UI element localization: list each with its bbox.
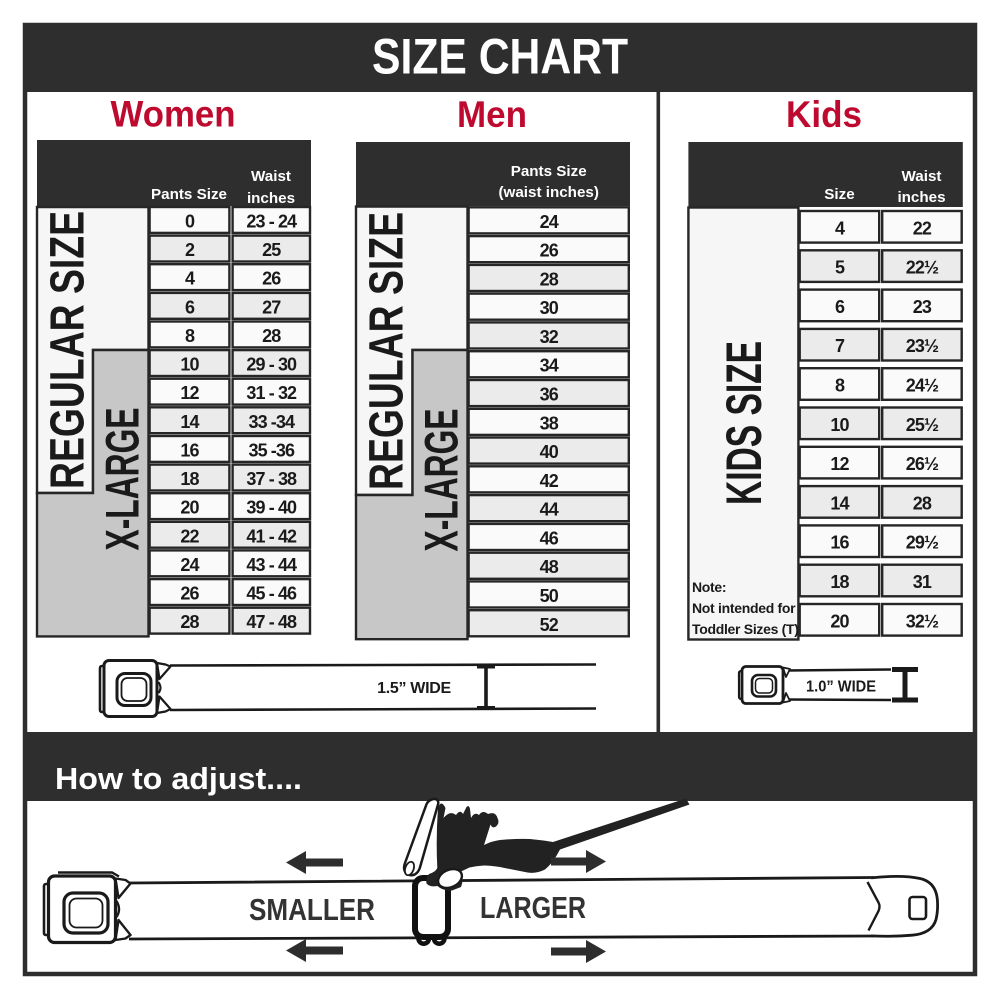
svg-text:20: 20	[180, 498, 199, 518]
svg-text:22: 22	[180, 526, 199, 546]
svg-text:14: 14	[830, 493, 849, 513]
svg-text:SIZE CHART: SIZE CHART	[372, 29, 628, 85]
svg-text:12: 12	[830, 454, 849, 474]
svg-text:38: 38	[540, 413, 559, 433]
svg-text:KIDS SIZE: KIDS SIZE	[716, 341, 772, 505]
svg-text:27: 27	[262, 297, 281, 317]
svg-text:45 - 46: 45 - 46	[246, 584, 297, 604]
svg-text:28: 28	[540, 269, 559, 289]
svg-text:41 - 42: 41 - 42	[246, 526, 297, 546]
svg-text:8: 8	[185, 326, 195, 346]
svg-text:inches: inches	[247, 190, 295, 207]
svg-text:43 - 44: 43 - 44	[246, 555, 297, 575]
svg-text:30: 30	[540, 298, 559, 318]
svg-text:37 - 38: 37 - 38	[246, 469, 297, 489]
svg-text:Note:: Note:	[692, 579, 726, 595]
svg-text:16: 16	[830, 533, 849, 553]
svg-text:How to adjust....: How to adjust....	[55, 761, 302, 796]
svg-text:31: 31	[913, 572, 932, 592]
svg-text:26½: 26½	[906, 454, 939, 474]
svg-text:18: 18	[180, 469, 199, 489]
svg-text:LARGER: LARGER	[480, 890, 586, 925]
svg-text:31 - 32: 31 - 32	[246, 383, 297, 403]
svg-text:24: 24	[180, 555, 199, 575]
svg-text:32: 32	[540, 327, 559, 347]
svg-text:8: 8	[835, 376, 845, 396]
svg-text:40: 40	[540, 442, 559, 462]
svg-text:42: 42	[540, 471, 559, 491]
svg-text:X-LARGE: X-LARGE	[415, 409, 468, 552]
svg-text:Waist: Waist	[251, 168, 291, 185]
svg-text:44: 44	[540, 500, 559, 520]
svg-text:28: 28	[913, 493, 932, 513]
svg-text:23½: 23½	[906, 336, 939, 356]
svg-text:18: 18	[830, 572, 849, 592]
svg-text:10: 10	[830, 415, 849, 435]
svg-text:23: 23	[913, 297, 932, 317]
svg-text:Waist: Waist	[902, 168, 942, 185]
svg-text:Toddler Sizes (T): Toddler Sizes (T)	[692, 621, 799, 637]
svg-text:22: 22	[913, 218, 932, 238]
svg-text:20: 20	[830, 611, 849, 631]
svg-text:33 -34: 33 -34	[248, 412, 295, 432]
svg-text:28: 28	[180, 612, 199, 632]
svg-text:Kids: Kids	[786, 93, 862, 135]
svg-text:5: 5	[835, 258, 845, 278]
svg-text:24: 24	[540, 212, 559, 232]
svg-text:26: 26	[540, 241, 559, 261]
svg-text:48: 48	[540, 557, 559, 577]
svg-text:25½: 25½	[906, 415, 939, 435]
svg-text:52: 52	[540, 615, 559, 635]
svg-text:29 - 30: 29 - 30	[246, 355, 297, 375]
svg-text:16: 16	[180, 440, 199, 460]
svg-text:46: 46	[540, 528, 559, 548]
svg-text:Not intended for: Not intended for	[692, 600, 796, 616]
svg-text:29½: 29½	[906, 533, 939, 553]
svg-text:28: 28	[262, 326, 281, 346]
svg-text:6: 6	[185, 297, 195, 317]
svg-text:25: 25	[262, 240, 281, 260]
svg-text:Pants Size: Pants Size	[151, 186, 227, 203]
svg-text:50: 50	[540, 586, 559, 606]
svg-text:26: 26	[262, 269, 281, 289]
svg-text:inches: inches	[897, 189, 945, 206]
svg-text:35 -36: 35 -36	[248, 440, 295, 460]
svg-text:4: 4	[185, 269, 195, 289]
svg-text:Women: Women	[111, 93, 236, 135]
svg-text:4: 4	[835, 218, 845, 238]
svg-text:Men: Men	[457, 93, 527, 135]
svg-text:Pants Size: Pants Size	[511, 163, 587, 180]
svg-text:24½: 24½	[906, 376, 939, 396]
svg-text:1.5” WIDE: 1.5” WIDE	[377, 680, 451, 697]
svg-text:36: 36	[540, 385, 559, 405]
svg-text:SMALLER: SMALLER	[249, 892, 375, 927]
svg-text:22½: 22½	[906, 258, 939, 278]
svg-text:(waist inches): (waist inches)	[498, 184, 598, 201]
svg-text:REGULAR SIZE: REGULAR SIZE	[42, 211, 95, 489]
svg-text:12: 12	[180, 383, 199, 403]
svg-text:10: 10	[180, 355, 199, 375]
svg-text:39 - 40: 39 - 40	[246, 498, 297, 518]
svg-text:23 - 24: 23 - 24	[246, 211, 297, 231]
svg-text:2: 2	[185, 240, 195, 260]
svg-text:14: 14	[180, 412, 199, 432]
svg-text:32½: 32½	[906, 611, 939, 631]
svg-text:1.0” WIDE: 1.0” WIDE	[806, 679, 876, 696]
svg-text:26: 26	[180, 584, 199, 604]
svg-text:REGULAR SIZE: REGULAR SIZE	[361, 212, 414, 490]
svg-text:Size: Size	[824, 186, 854, 203]
svg-text:6: 6	[835, 297, 845, 317]
svg-text:X-LARGE: X-LARGE	[96, 408, 149, 551]
svg-text:34: 34	[540, 356, 559, 376]
svg-text:7: 7	[835, 336, 845, 356]
svg-text:0: 0	[185, 211, 195, 231]
svg-text:47 - 48: 47 - 48	[246, 612, 297, 632]
